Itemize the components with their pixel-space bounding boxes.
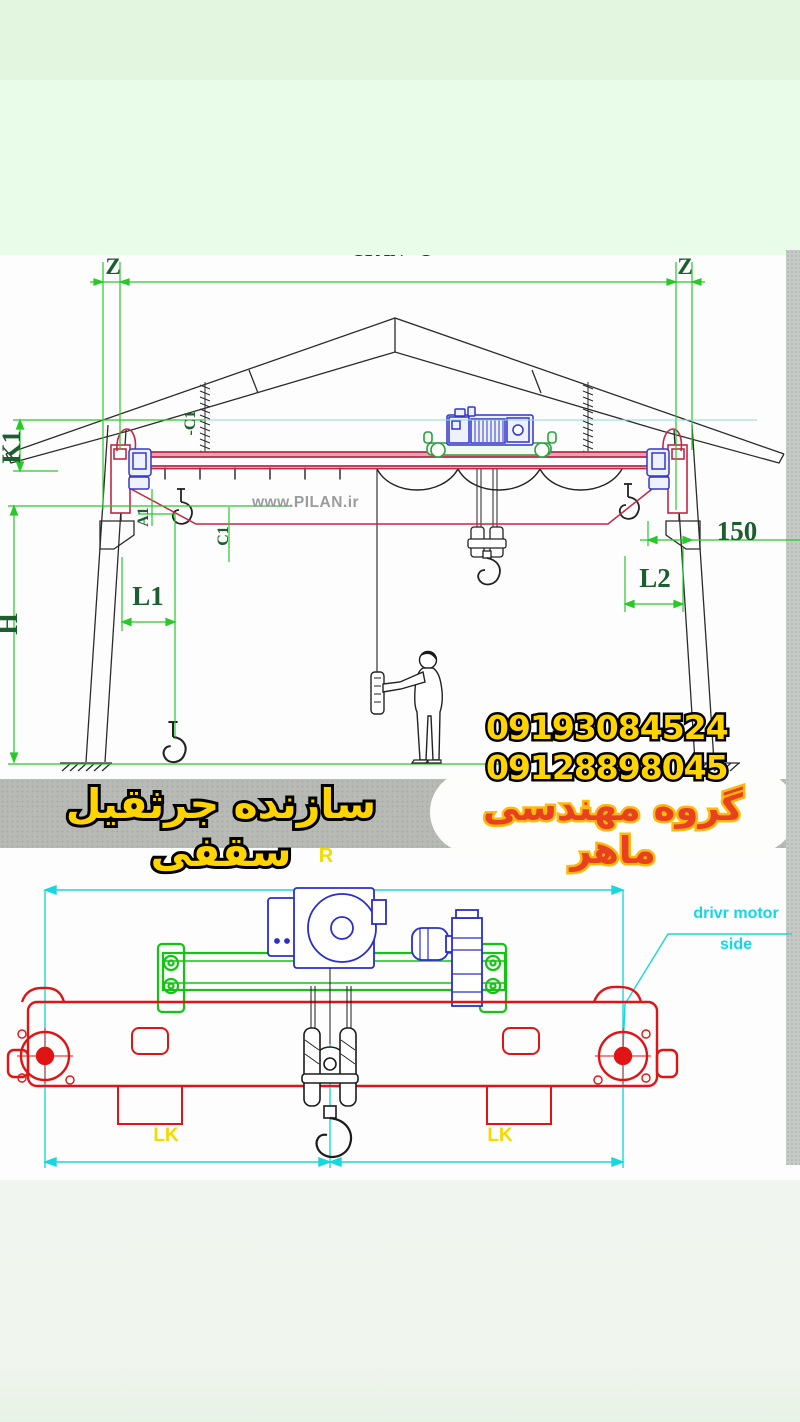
manufacturer-banner: سازنده جرثقیل سقفی سازنده جرثقیل سقفی [16,780,426,834]
phone-number-1: 09193084524 09193084524 [486,708,714,748]
l1-label: L1 [122,581,174,612]
lk-right-label: LK [481,1125,519,1147]
h-label: H [0,605,25,643]
hoist-trolley-upper [424,407,556,457]
drive-motor-note-line1: drivr motor [678,905,794,923]
dim-150-label: 150 [705,516,769,547]
operator-figure [371,651,442,763]
l2-label: L2 [629,563,681,594]
phone-number-2: 09128898045 09128898045 [486,748,714,788]
c1-top-label: -C1 [182,404,200,442]
k1-label: K1 [0,428,27,466]
z-left-label: Z [99,254,127,280]
watermark-text: www.PILAN.ir [252,494,359,512]
z-right-label: Z [671,254,699,280]
company-name: گروه مهندسی ماهر گروه مهندسی ماهر [440,786,786,838]
crane-girder [111,429,687,524]
hoist-machinery-endview [268,888,482,1006]
hook-block-upper [468,469,506,584]
a1-label: A1 [135,499,153,535]
lk-left-label: LK [147,1125,185,1147]
drive-motor-note-line2: side [678,936,794,954]
c1-label: C1 [215,518,233,554]
festoon-cables [165,468,622,671]
building-frame [6,318,784,771]
